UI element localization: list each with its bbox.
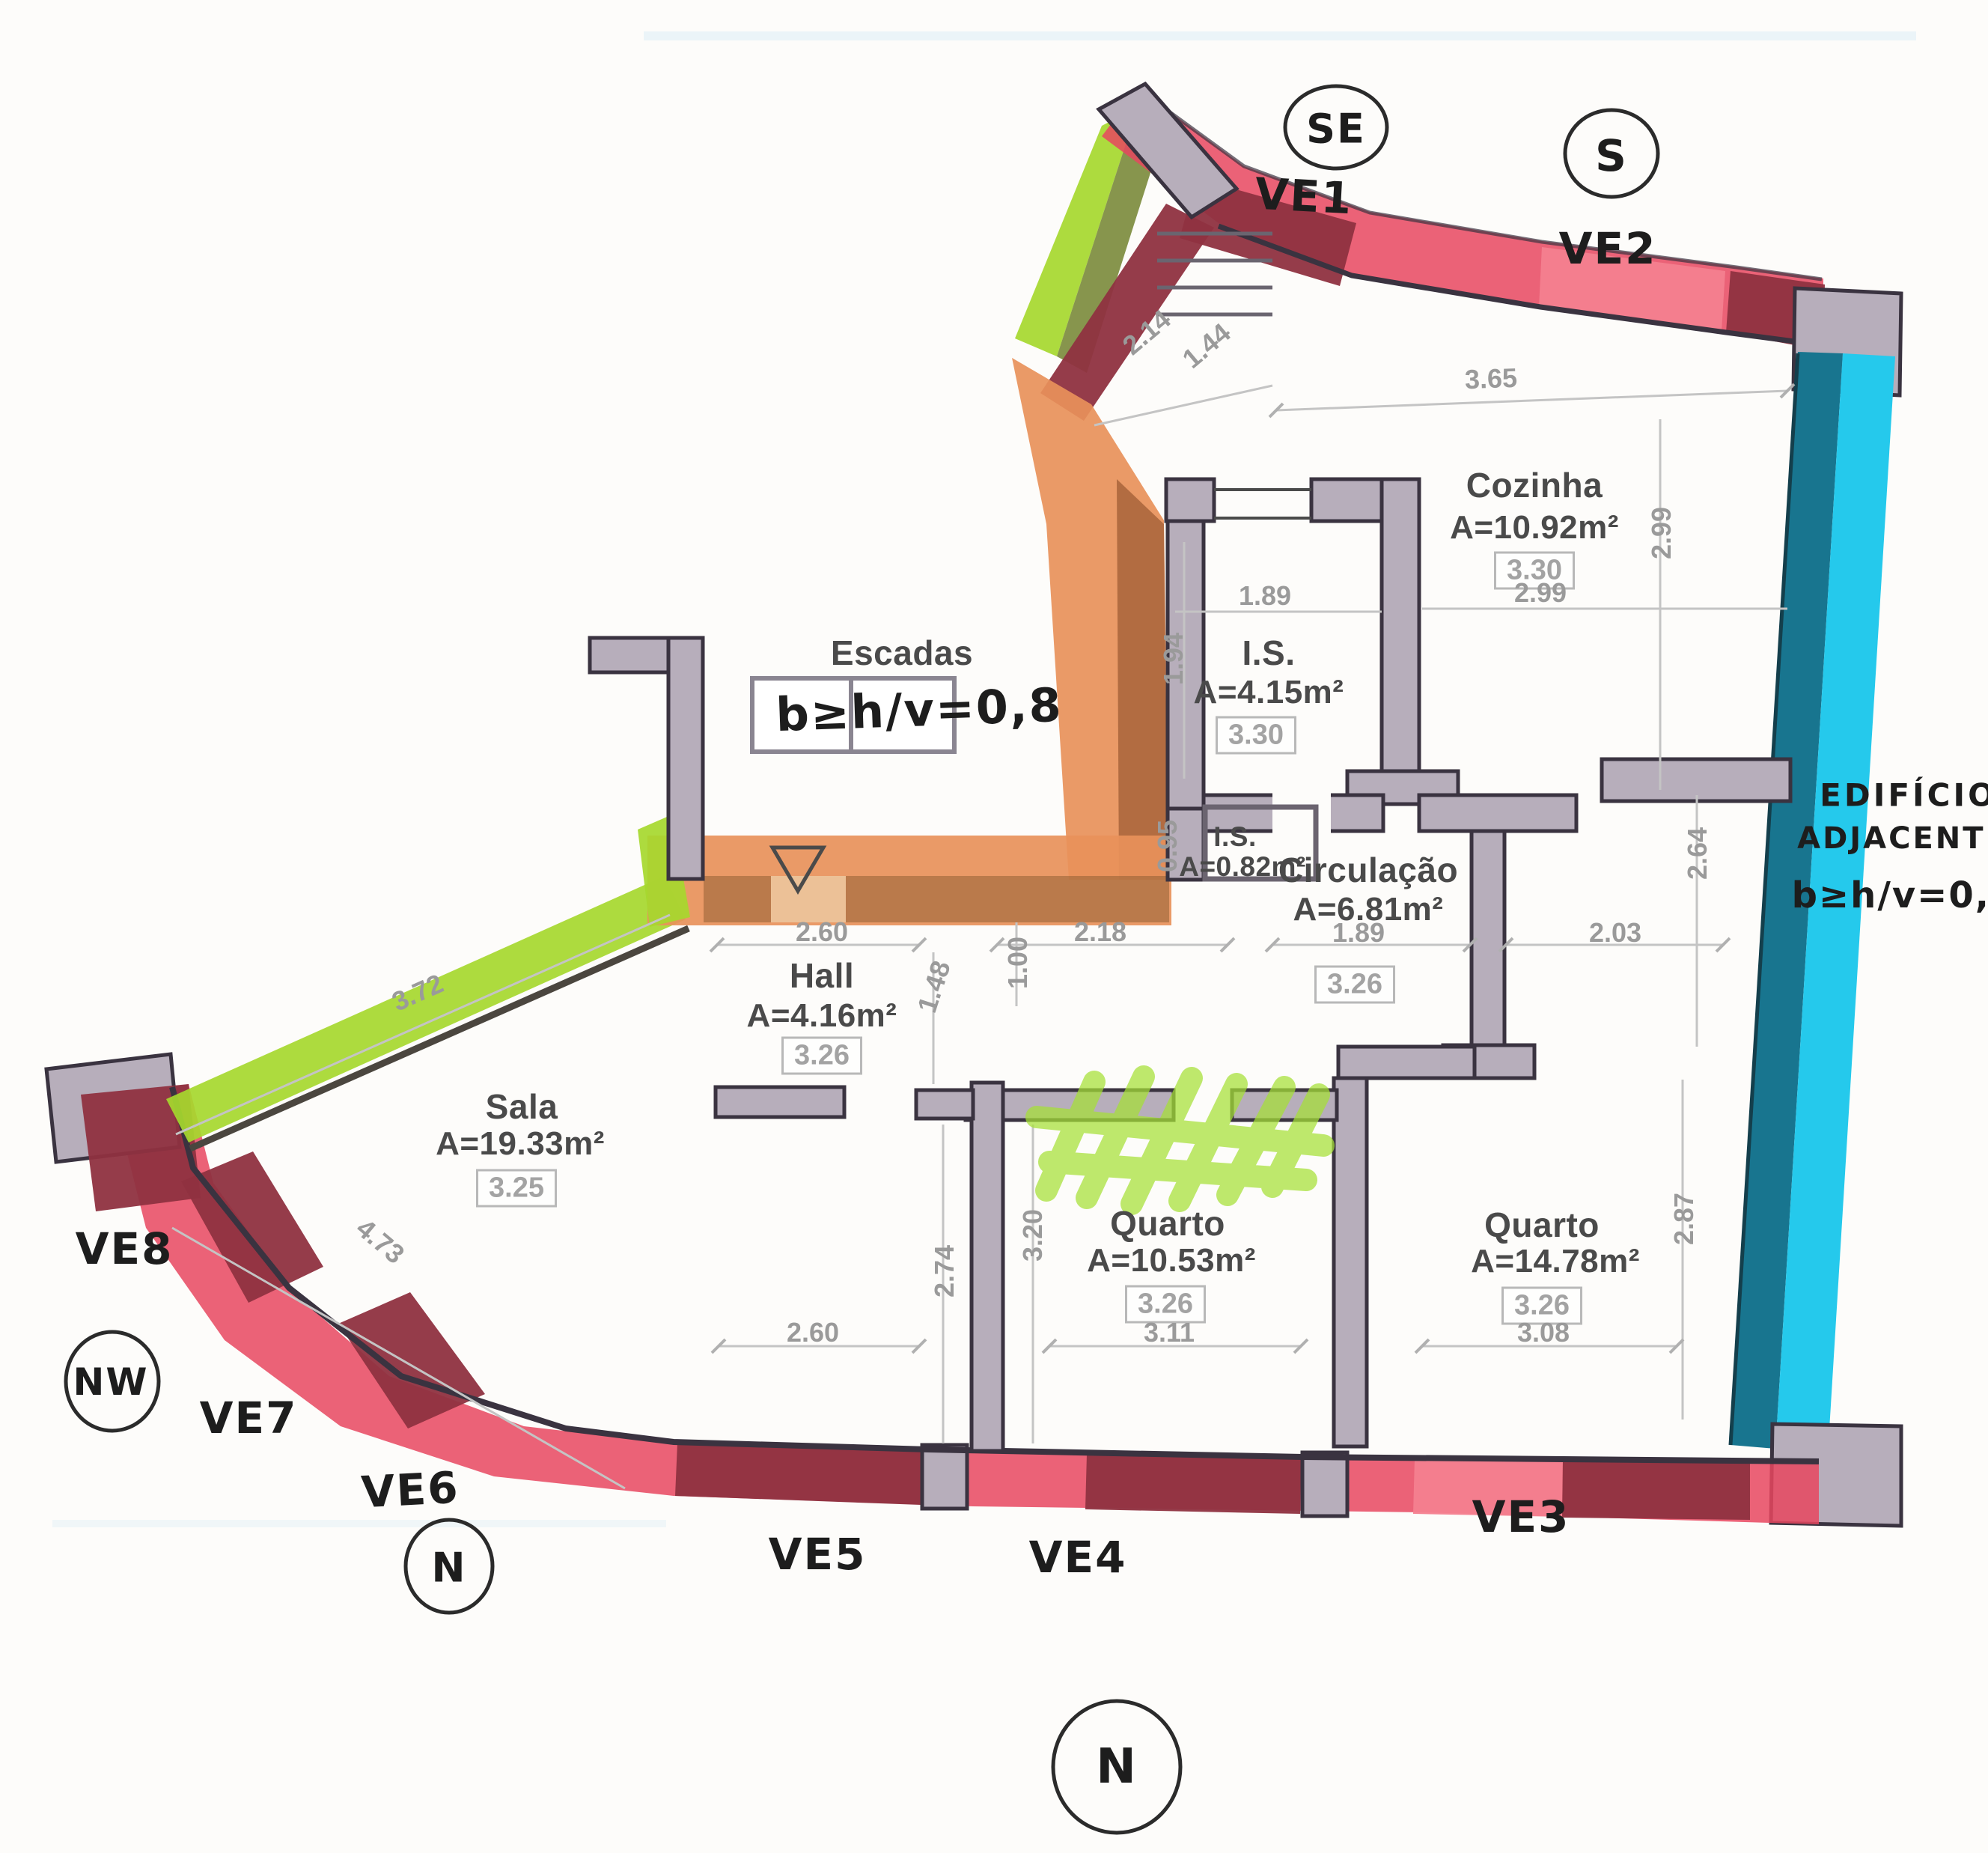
highlight-orange-band <box>638 204 1214 927</box>
compass-se: SE <box>1306 106 1366 153</box>
room-label-hall: Hall <box>790 955 854 996</box>
dim-cozinha-bottom: 2.99 <box>1514 577 1567 609</box>
compass-s: S <box>1595 130 1628 181</box>
escadas-ratio-note: b≥h/v=0,8 <box>775 678 1064 742</box>
highlight-green-band-left <box>166 876 689 1148</box>
window-label-ve8: VE8 <box>76 1223 174 1274</box>
dim-quarto2-w: 3.08 <box>1517 1317 1570 1348</box>
room-label-quarto2: Quarto <box>1484 1205 1600 1245</box>
window-label-ve3: VE3 <box>1472 1491 1570 1542</box>
floor-plan-page: Cozinha A=10.92m² 3.30 I.S. A=4.15m² 3.3… <box>0 0 1988 1853</box>
room-area-is1: A=4.15m² <box>1194 674 1344 711</box>
room-area-sala: A=19.33m² <box>436 1125 605 1163</box>
dim-is2-left: 0.95 <box>1152 820 1183 872</box>
compass-n-big: N <box>1096 1739 1138 1795</box>
dim-hall-top: 2.60 <box>796 916 848 948</box>
room-label-circulacao: Circulação <box>1278 850 1458 890</box>
room-box-hall: 3.26 <box>781 1037 862 1075</box>
room-area-cozinha: A=10.92m² <box>1450 509 1619 547</box>
compass-n-small: N <box>431 1545 466 1592</box>
dim-sala-w: 2.60 <box>787 1317 839 1348</box>
room-box-is1: 3.30 <box>1216 716 1296 755</box>
dim-hall-v2: 1.00 <box>1002 937 1034 989</box>
dim-quarto1-v2: 3.20 <box>1017 1209 1049 1262</box>
dim-quarto1-w: 3.11 <box>1144 1317 1195 1348</box>
room-label-sala: Sala <box>486 1086 558 1127</box>
window-label-ve7: VE7 <box>200 1393 298 1443</box>
adjacent-ratio-note: b≥h/v=0,6 <box>1792 874 1988 916</box>
room-label-escadas: Escadas <box>831 633 973 673</box>
dim-circulacao-e: 2.03 <box>1589 917 1641 949</box>
window-label-ve2: VE2 <box>1559 223 1657 274</box>
window-label-ve4: VE4 <box>1029 1532 1127 1583</box>
dim-corridor: 2.18 <box>1074 916 1126 948</box>
facade-top-band <box>1102 88 1825 350</box>
room-box-circulacao: 3.26 <box>1314 966 1395 1004</box>
dim-is-left: 1.94 <box>1158 633 1189 685</box>
room-label-quarto1: Quarto <box>1110 1203 1225 1244</box>
compass-nw: NW <box>73 1360 149 1404</box>
green-scribble <box>1037 1077 1323 1204</box>
room-label-is2: I.S. <box>1213 821 1257 853</box>
dim-cozinha-top: 3.65 <box>1464 362 1518 395</box>
room-area-hall: A=4.16m² <box>747 997 897 1035</box>
room-label-cozinha: Cozinha <box>1466 465 1603 505</box>
window-label-ve5: VE5 <box>769 1529 867 1580</box>
dim-circulacao-v: 2.64 <box>1682 827 1713 880</box>
window-label-ve1: VE1 <box>1254 168 1354 225</box>
room-area-quarto2: A=14.78m² <box>1471 1243 1640 1280</box>
adjacent-building-label-1: EDIFÍCIO <box>1820 777 1988 814</box>
dim-quarto2-v: 2.87 <box>1668 1193 1700 1245</box>
dim-circulacao-w: 1.89 <box>1332 917 1385 949</box>
dim-quarto1-v1: 2.74 <box>929 1245 960 1297</box>
adjacent-building-label-2: ADJACENTE <box>1797 821 1988 856</box>
window-label-ve6: VE6 <box>360 1462 460 1518</box>
room-label-is1: I.S. <box>1242 633 1295 673</box>
room-area-quarto1: A=10.53m² <box>1087 1242 1256 1280</box>
dim-cozinha-right: 2.99 <box>1646 507 1677 559</box>
room-box-sala: 3.25 <box>476 1169 557 1208</box>
floor-plan-drawing <box>0 0 1988 1853</box>
dim-is-top: 1.89 <box>1239 580 1291 612</box>
